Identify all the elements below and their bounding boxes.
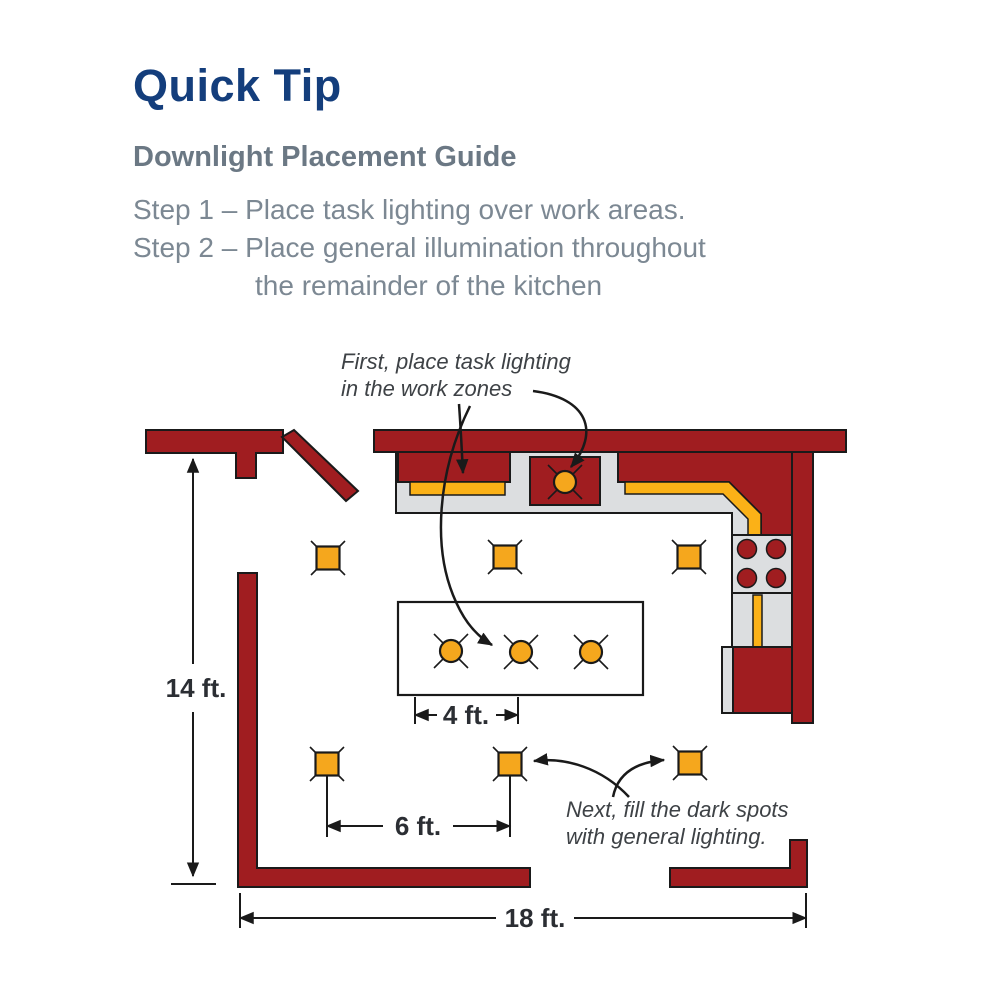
- island-downlight: [434, 634, 468, 668]
- ceiling-downlight: [673, 746, 707, 780]
- ceiling-downlight: [672, 540, 706, 574]
- dimension-label-18ft: 18 ft.: [505, 903, 566, 933]
- refrigerator: [733, 647, 792, 713]
- burner: [738, 540, 757, 559]
- task-light-strip-left: [410, 482, 505, 495]
- annotation-task-line1: First, place task lighting: [341, 349, 572, 374]
- dimension-label-4ft: 4 ft.: [443, 700, 489, 730]
- ceiling-downlight: [488, 540, 522, 574]
- task-light-strip-below-stove: [753, 595, 762, 647]
- wall-top-left: [146, 430, 283, 478]
- sink-downlight: [548, 465, 582, 499]
- dimension-label-14ft: 14 ft.: [166, 673, 227, 703]
- burner: [738, 569, 757, 588]
- arrow-general-to-right-light: [613, 760, 664, 797]
- annotation-general-line1: Next, fill the dark spots: [566, 797, 789, 822]
- dimension-label-6ft: 6 ft.: [395, 811, 441, 841]
- ceiling-downlight: [311, 541, 345, 575]
- burner: [767, 569, 786, 588]
- annotation-task-line2: in the work zones: [341, 376, 512, 401]
- cabinet-left: [398, 452, 510, 482]
- wall-right: [792, 452, 813, 723]
- dimension-room-height: 14 ft.: [166, 459, 227, 884]
- dimension-general-spacing: 6 ft.: [327, 776, 510, 841]
- dimension-island-spacing: 4 ft.: [415, 697, 518, 730]
- ceiling-downlight: [493, 747, 527, 781]
- wall-top: [374, 430, 846, 452]
- annotation-general-line2: with general lighting.: [566, 824, 767, 849]
- ceiling-downlight: [310, 747, 344, 781]
- burner: [767, 540, 786, 559]
- entry-door-diagonal: [282, 430, 358, 501]
- dimension-room-width: 18 ft.: [240, 893, 806, 933]
- island-downlight: [504, 635, 538, 669]
- kitchen-floor-plan: 14 ft. 4 ft. 6 ft. 18 ft.: [0, 0, 1000, 1000]
- quick-tip-infographic: Quick Tip Downlight Placement Guide Step…: [0, 0, 1000, 1000]
- island-downlight: [574, 635, 608, 669]
